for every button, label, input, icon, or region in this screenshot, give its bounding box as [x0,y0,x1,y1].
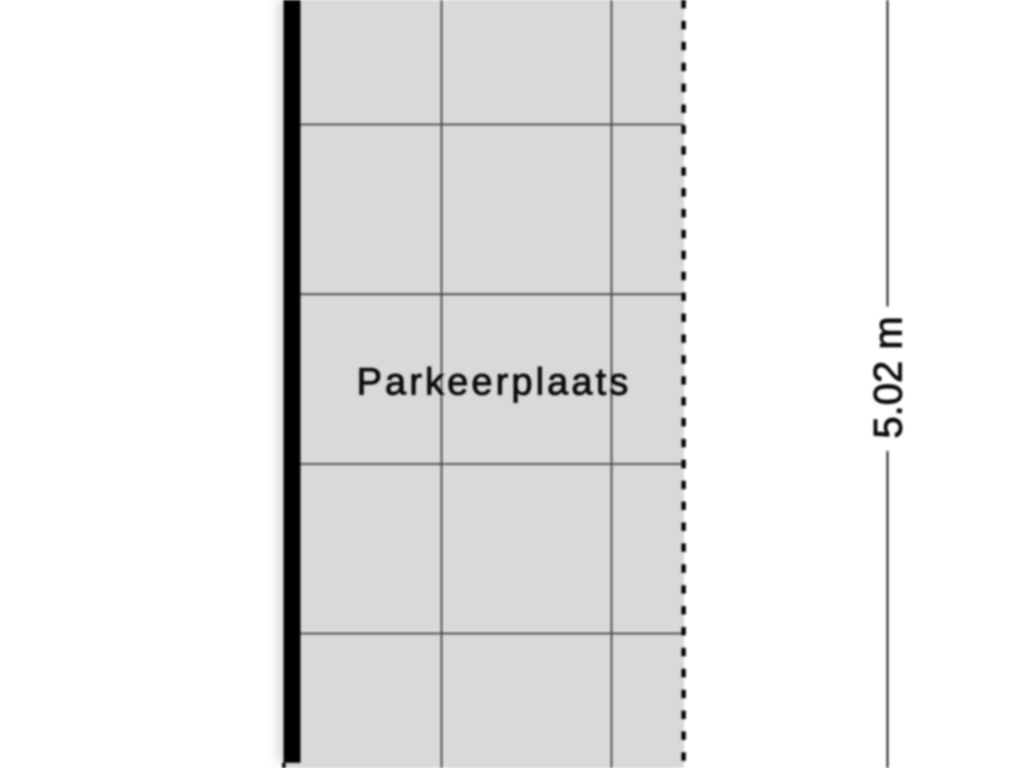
svg-text:Parkeerplaats: Parkeerplaats [357,362,632,404]
svg-text:5.02 m: 5.02 m [867,316,911,438]
